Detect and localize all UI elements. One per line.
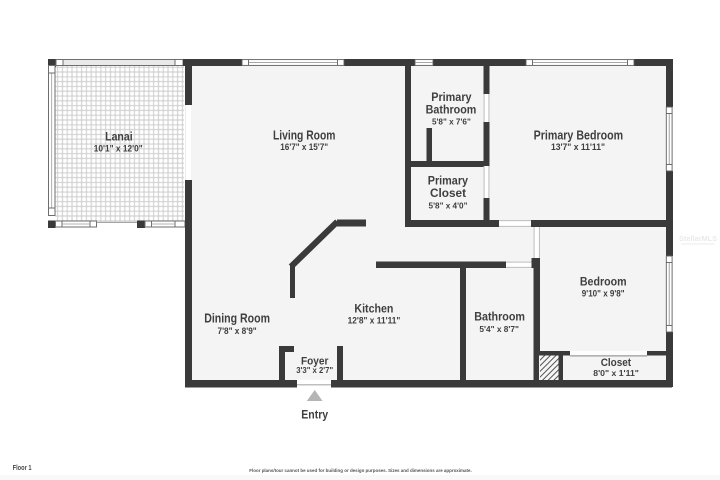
- svg-text:5'4" x 8'7": 5'4" x 8'7": [479, 324, 519, 334]
- svg-text:16'7" x 15'7": 16'7" x 15'7": [280, 142, 328, 153]
- svg-text:13'7" x 11'11": 13'7" x 11'11": [551, 142, 605, 153]
- svg-text:7'8" x 8'9": 7'8" x 8'9": [218, 326, 257, 337]
- svg-text:Primary: Primary: [428, 175, 469, 187]
- svg-text:Lanai: Lanai: [105, 130, 133, 144]
- svg-text:Kitchen: Kitchen: [354, 304, 393, 316]
- svg-text:10'1" x 12'0": 10'1" x 12'0": [94, 143, 143, 154]
- svg-text:Primary Bedroom: Primary Bedroom: [534, 128, 624, 143]
- svg-text:5'8" x 7'6": 5'8" x 7'6": [432, 117, 471, 127]
- svg-text:8'0" x 1'11": 8'0" x 1'11": [593, 369, 639, 378]
- svg-text:Bedroom: Bedroom: [580, 277, 627, 289]
- svg-text:Closet: Closet: [601, 357, 632, 369]
- svg-text:3'3" x 2'7": 3'3" x 2'7": [296, 366, 333, 375]
- svg-text:Floor 1: Floor 1: [13, 465, 32, 472]
- svg-text:Floor plans/tour cannot be use: Floor plans/tour cannot be used for buil…: [249, 468, 471, 474]
- svg-text:Primary: Primary: [431, 92, 472, 104]
- svg-text:Living Room: Living Room: [273, 127, 336, 142]
- svg-text:9'10" x 9'8": 9'10" x 9'8": [582, 288, 625, 299]
- svg-text:12'8" x 11'11": 12'8" x 11'11": [348, 315, 401, 326]
- svg-text:StellarMLS: StellarMLS: [679, 236, 717, 243]
- svg-text:Entry: Entry: [301, 410, 328, 422]
- svg-text:5'8" x 4'0": 5'8" x 4'0": [429, 201, 468, 211]
- svg-text:Closet: Closet: [430, 188, 466, 200]
- svg-text:Dining Room: Dining Room: [204, 311, 270, 326]
- svg-text:Bathroom: Bathroom: [474, 312, 525, 324]
- svg-text:Bathroom: Bathroom: [426, 105, 477, 117]
